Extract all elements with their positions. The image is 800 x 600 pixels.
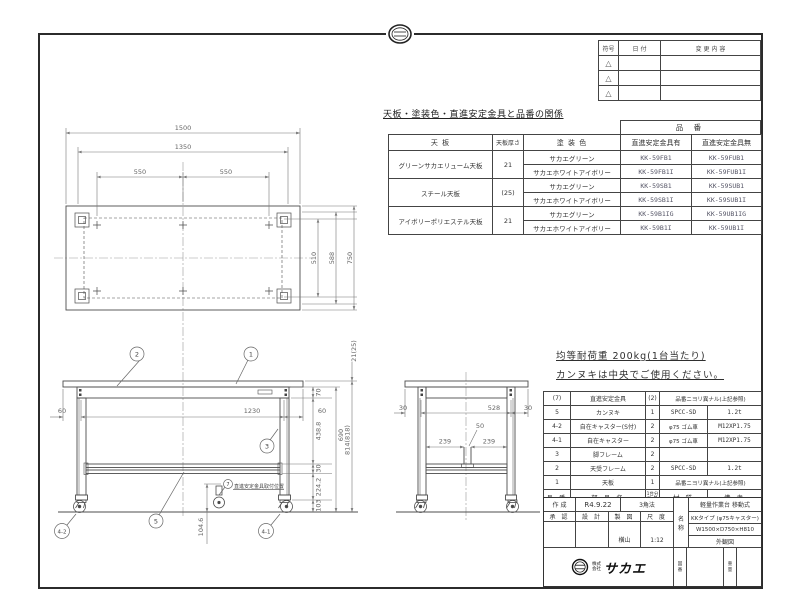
part-number: KK-59UB1I (692, 221, 762, 235)
revision-row: △ (599, 86, 761, 101)
dim-side-528: 528 (488, 404, 500, 412)
table-row: 4-1 自在キャスター 2 φ75 ゴム車 M12XP1.75 (544, 434, 762, 448)
dim-top-right-550: 550 (220, 168, 232, 176)
drawing-no-value (687, 548, 724, 586)
revision-mark: △ (599, 71, 619, 86)
note: 1.2t (708, 462, 762, 476)
part-name: 直進安定金具 (571, 392, 646, 406)
balloon-1: 1 (249, 351, 253, 359)
dim-caster-103: 103 (315, 499, 323, 511)
dim-104.6: 104.6 (197, 518, 205, 537)
company-name: サカエ (604, 558, 646, 577)
drawing-views: 1500 1350 550 550 510 588 750 (38, 98, 542, 572)
product-type: KKタイプ (φ75キャスター) (689, 512, 761, 524)
dim-slot-50: 50 (476, 422, 484, 430)
dim-front-1230: 1230 (244, 407, 261, 415)
dim-top-left-550: 550 (134, 168, 146, 176)
item-no: 2 (544, 462, 571, 476)
table-row: 1 天板 1 品番ニヨリ異ナル(上記参照) (544, 476, 762, 490)
qty: 2 (646, 448, 660, 462)
caster-left (74, 500, 87, 513)
material: SPCC-SD (660, 462, 708, 476)
title-block: 作 成 R4.9.22 3角法 承 認 設 計 製 図 尺 度 横山 1:12 … (543, 497, 762, 587)
qty: 2 (646, 462, 660, 476)
note: 1.2t (708, 406, 762, 420)
designed-label: 設 計 (576, 512, 609, 522)
scale-label: 尺 度 (641, 512, 674, 522)
drawing-sheet: 符号 日 付 変 更 内 容 △ △ △ 天板・塗装色・直進安定金具と品番の関係… (0, 0, 800, 600)
qty: 1 (646, 476, 660, 490)
balloon-2: 2 (135, 351, 139, 359)
revision-mark: △ (599, 56, 619, 71)
part-name: 自在キャスター(S付) (571, 420, 646, 434)
parts-table: (7) 直進安定金具 (2) 品番ニヨリ異ナル(上記参照) 5 カンヌキ 1 S… (543, 391, 762, 505)
balloon-3: 3 (265, 443, 269, 451)
product-title: 軽量作業台 移動式 (689, 498, 761, 512)
name-label: 名 称 (674, 498, 689, 548)
dim-side-left-30: 30 (399, 404, 407, 412)
part-number: KK-59UB1IG (692, 207, 762, 221)
material: φ75 ゴム車 (660, 420, 708, 434)
table-row: 2 天受フレーム 2 SPCC-SD 1.2t (544, 462, 762, 476)
part-number: KK-59B1IG (621, 207, 692, 221)
material: 品番ニヨリ異ナル(上記参照) (660, 392, 762, 406)
rev-header-symbol: 符号 (599, 41, 619, 56)
part-number-header: 品 番 (620, 120, 761, 134)
projection-method: 3角法 (621, 498, 674, 512)
weight-value (737, 548, 761, 586)
dim-rail-30: 30 (315, 464, 323, 472)
material (660, 448, 708, 462)
part-name: 脚フレーム (571, 448, 646, 462)
part-number: KK-59SUB1I (692, 193, 762, 207)
balloon-4-2: 4-2 (58, 530, 67, 536)
caster-side-left (415, 500, 427, 513)
revision-mark: △ (599, 86, 619, 101)
part-number: KK-59SUB1 (692, 179, 762, 193)
drawing-type: 外観図 (689, 536, 761, 548)
item-no: 4-2 (544, 420, 571, 434)
part-number: KK-59B1I (621, 221, 692, 235)
revision-table: 符号 日 付 変 更 内 容 △ △ △ (598, 40, 761, 101)
revision-row: △ (599, 71, 761, 86)
side-view (396, 381, 540, 513)
material: φ75 ゴム車 (660, 434, 708, 448)
part-name: カンヌキ (571, 406, 646, 420)
crossbar-note: カンヌキは中央でご使用ください。 (556, 366, 724, 385)
note: M12XP1.75 (708, 420, 762, 434)
part-name: 天板 (571, 476, 646, 490)
material: 品番ニヨリ異ナル(上記参照) (660, 476, 762, 490)
dim-top-510: 510 (310, 252, 318, 264)
note (708, 448, 762, 462)
dim-438.8: 438.8 (315, 422, 323, 441)
dim-front-left-60: 60 (58, 407, 66, 415)
designed-by (576, 522, 609, 548)
dim-height-814: 814(818) (344, 425, 352, 455)
item-no: (7) (544, 392, 571, 406)
part-number: KK-59SB1I (621, 193, 692, 207)
table-row: 5 カンヌキ 1 SPCC-SD 1.2t (544, 406, 762, 420)
dim-side-right-30: 30 (524, 404, 532, 412)
dim-top-width: 1500 (175, 124, 192, 132)
dim-top-inner-width: 1350 (175, 143, 192, 151)
balloon-7: 7 (226, 482, 229, 488)
caster-side-right (507, 500, 519, 513)
part-number: KK-59FUB1I (692, 165, 762, 179)
part-name: 天受フレーム (571, 462, 646, 476)
created-label: 作 成 (544, 498, 576, 512)
top-view-dimensions (66, 128, 357, 310)
dim-top-588: 588 (328, 252, 336, 264)
col-header-with-bracket: 直進安定金具有 (621, 135, 692, 151)
dim-top-750: 750 (346, 252, 354, 264)
weight-label: 重 量 (724, 548, 737, 586)
caster-right (279, 500, 293, 513)
drawn-by: 横山 (609, 522, 641, 548)
centerlines (54, 162, 466, 520)
rev-header-change: 変 更 内 容 (661, 41, 761, 56)
part-number: KK-59FUB1 (692, 151, 762, 165)
part-number: KK-59FB1 (621, 151, 692, 165)
revision-row: △ (599, 56, 761, 71)
table-row: 3 脚フレーム 2 (544, 448, 762, 462)
item-no: 4-1 (544, 434, 571, 448)
approved-by (544, 522, 576, 548)
note: M12XP1.75 (708, 434, 762, 448)
dim-apron-70: 70 (315, 388, 323, 396)
company-prefix: 株式 会社 (592, 562, 601, 572)
col-header-without-bracket: 直進安定金具無 (692, 135, 762, 151)
drawn-label: 製 図 (609, 512, 641, 522)
part-number: KK-59FB1I (621, 165, 692, 179)
balloon-4-1: 4-1 (262, 530, 271, 536)
material: SPCC-SD (660, 406, 708, 420)
qty: 2 (646, 420, 660, 434)
approved-label: 承 認 (544, 512, 576, 522)
part-number: KK-59SB1 (621, 179, 692, 193)
created-date: R4.9.22 (576, 498, 621, 512)
dim-top-thickness: 21(25) (350, 340, 358, 362)
dim-224.2: 224.2 (315, 478, 323, 497)
qty: 1 (646, 406, 660, 420)
dim-side-right-239: 239 (483, 438, 495, 446)
sakae-mark-icon (386, 23, 414, 49)
load-capacity-note: 均等耐荷重 200kg(1台当たり) (556, 347, 724, 366)
table-row: 4-2 自在キャスター(S付) 2 φ75 ゴム車 M12XP1.75 (544, 420, 762, 434)
rev-header-date: 日 付 (619, 41, 661, 56)
qty: (2) (646, 392, 660, 406)
table-row: (7) 直進安定金具 (2) 品番ニヨリ異ナル(上記参照) (544, 392, 762, 406)
item-no: 3 (544, 448, 571, 462)
load-notes: 均等耐荷重 200kg(1台当たり) カンヌキは中央でご使用ください。 (556, 347, 724, 385)
balloons (55, 347, 285, 539)
crossbar-slot (464, 447, 471, 464)
part-name: 自在キャスター (571, 434, 646, 448)
drawing-no-label: 図 番 (674, 548, 687, 586)
item-no: 5 (544, 406, 571, 420)
bracket-position-note: 直進安定金具取付位置 (234, 483, 284, 490)
company-logo: 株式 会社 サカエ (544, 548, 674, 586)
front-view-dimensions (50, 362, 357, 544)
balloon-5: 5 (154, 518, 158, 526)
qty: 2 (646, 434, 660, 448)
dim-front-right-60: 60 (318, 407, 326, 415)
product-size: W1500×D750×H810 (689, 524, 761, 536)
scale-value: 1:12 (641, 522, 674, 548)
dim-side-left-239: 239 (439, 438, 451, 446)
item-no: 1 (544, 476, 571, 490)
sakae-logo-icon (571, 558, 589, 576)
